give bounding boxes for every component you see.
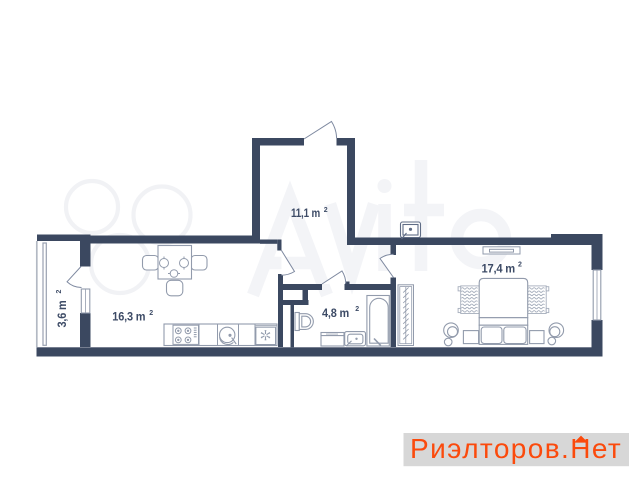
svg-text:2: 2 xyxy=(149,310,153,317)
svg-text:16,3 m: 16,3 m xyxy=(112,310,145,324)
svg-text:17,4 m: 17,4 m xyxy=(482,261,516,275)
svg-text:2: 2 xyxy=(355,306,359,313)
svg-text:2: 2 xyxy=(56,290,63,294)
svg-text:2: 2 xyxy=(518,262,522,269)
svg-text:4,8 m: 4,8 m xyxy=(322,306,349,320)
svg-text:11,1 m: 11,1 m xyxy=(291,206,320,220)
svg-text:2: 2 xyxy=(324,207,328,214)
svg-text:Риэлторов.Нет: Риэлторов.Нет xyxy=(410,433,622,464)
svg-text:3,6 m: 3,6 m xyxy=(55,301,69,328)
